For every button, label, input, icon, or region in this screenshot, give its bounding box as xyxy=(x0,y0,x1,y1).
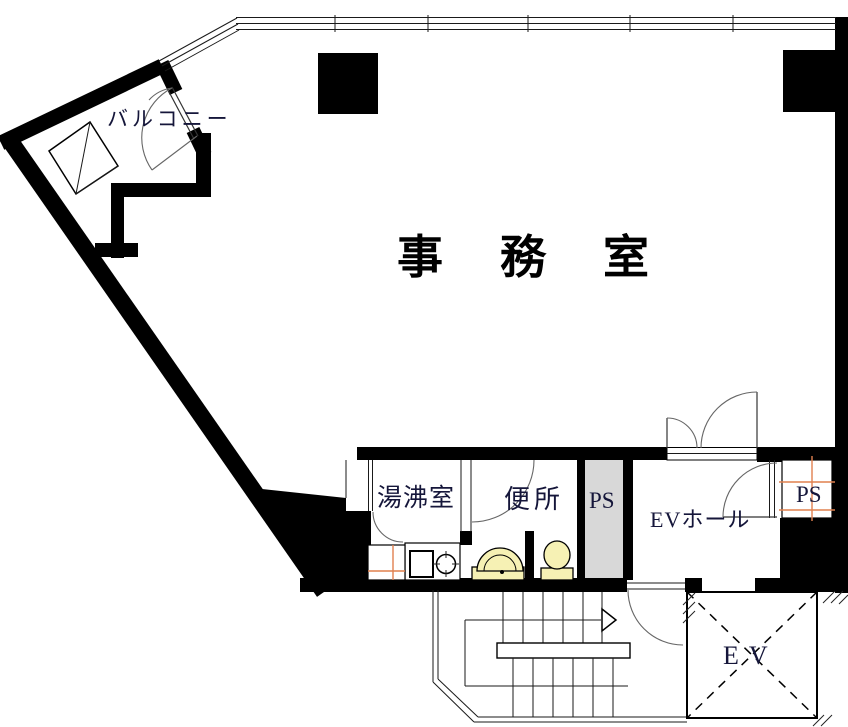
kitchenette-label: 湯沸室 xyxy=(377,484,455,512)
pipe-space-left-label: PS xyxy=(589,488,615,513)
sink xyxy=(410,551,433,577)
elevator-hall-label: EVホール xyxy=(650,507,750,532)
pipe-shaft-left xyxy=(585,460,623,580)
kitchenette-duct-box xyxy=(368,545,405,580)
kitchenette-counter xyxy=(405,543,460,580)
pipe-space-right-label: PS xyxy=(796,482,822,507)
elevator-label: EV xyxy=(723,641,778,670)
floor-plan: 事務室 バルコニー 湯沸室 便所 PS PS EVホール EV xyxy=(0,0,848,727)
balcony-label: バルコニー xyxy=(107,107,232,131)
office-label: 事務室 xyxy=(397,231,706,283)
toilet-bowl xyxy=(541,541,573,580)
toilet-label: 便所 xyxy=(504,485,564,514)
